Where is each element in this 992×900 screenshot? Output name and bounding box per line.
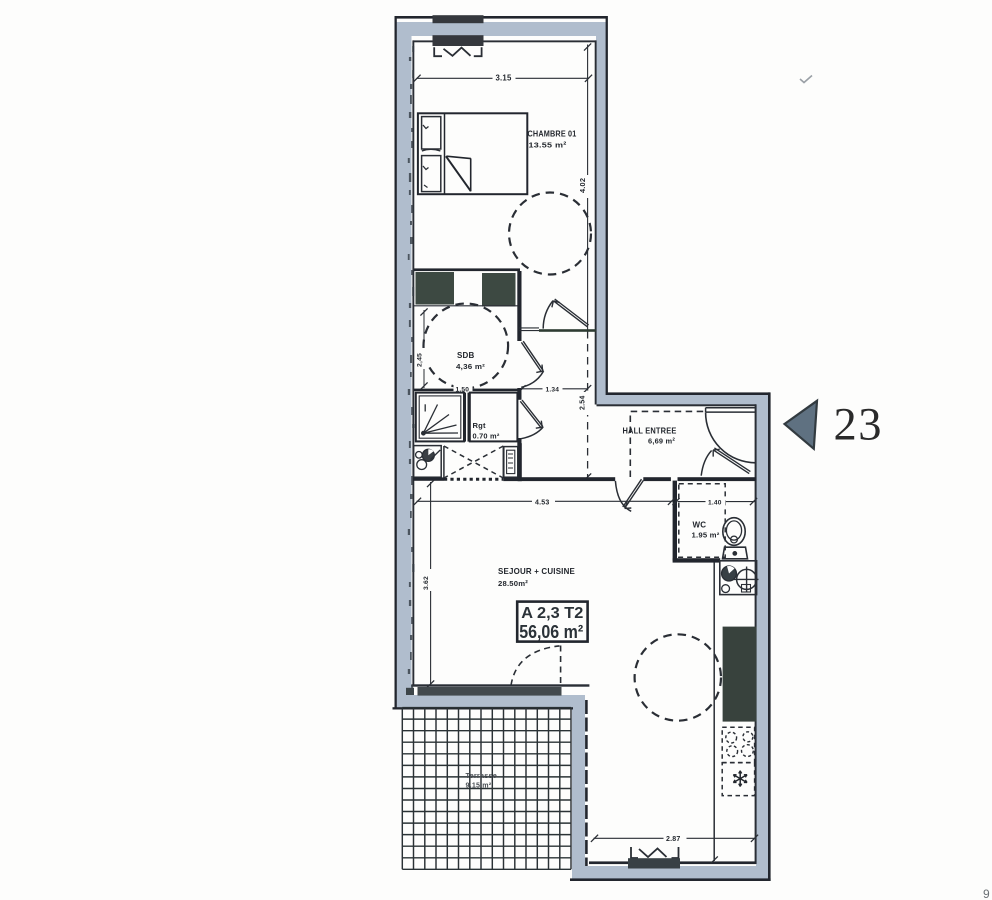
svg-text:2,45: 2,45 — [417, 353, 424, 367]
svg-text:1.34: 1.34 — [546, 387, 560, 394]
svg-text:1.95 m²: 1.95 m² — [692, 531, 720, 540]
svg-text:9.15 m²: 9.15 m² — [466, 782, 492, 790]
svg-text:SEJOUR + CUISINE: SEJOUR + CUISINE — [498, 566, 575, 576]
svg-text:1.40: 1.40 — [708, 500, 722, 507]
svg-text:28.50m²: 28.50m² — [498, 579, 528, 588]
svg-text:A 2,3 T2: A 2,3 T2 — [521, 605, 583, 622]
svg-text:9: 9 — [983, 887, 990, 900]
svg-text:CHAMBRE 01: CHAMBRE 01 — [528, 130, 577, 139]
svg-text:23: 23 — [834, 400, 884, 451]
svg-text:2.87: 2.87 — [666, 836, 680, 843]
svg-text:4,36 m²: 4,36 m² — [456, 362, 485, 371]
svg-text:Rgt: Rgt — [473, 421, 487, 430]
svg-text:3.15: 3.15 — [496, 74, 512, 83]
svg-text:3.62: 3.62 — [423, 576, 430, 590]
svg-text:4.02: 4.02 — [578, 178, 587, 193]
svg-text:WC: WC — [693, 521, 707, 530]
svg-text:SDB: SDB — [457, 351, 475, 360]
svg-text:4.53: 4.53 — [535, 499, 549, 506]
svg-text:0.70 m²: 0.70 m² — [473, 432, 500, 441]
svg-text:Terrasse: Terrasse — [466, 771, 498, 780]
svg-text:56,06 m²: 56,06 m² — [519, 621, 583, 642]
svg-text:13.55 m²: 13.55 m² — [529, 141, 567, 150]
svg-text:2.54: 2.54 — [580, 396, 587, 410]
svg-text:6,69 m²: 6,69 m² — [648, 437, 675, 446]
svg-text:HALL ENTREE: HALL ENTREE — [623, 426, 677, 435]
